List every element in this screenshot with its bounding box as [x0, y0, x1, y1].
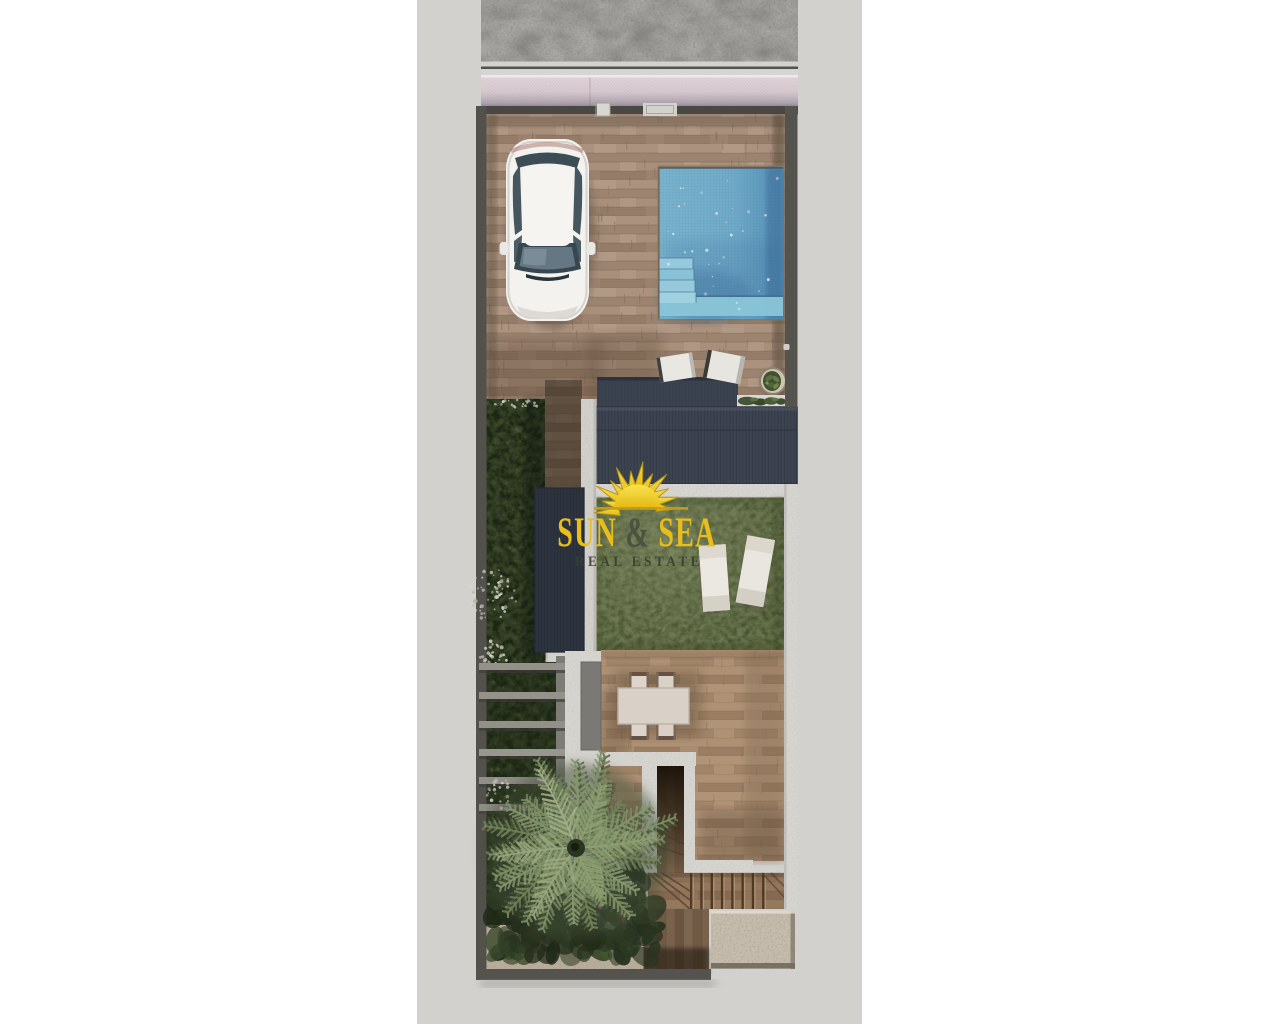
- svg-text:REAL ESTATE: REAL ESTATE: [575, 553, 703, 570]
- svg-text:SUN & SEA: SUN & SEA: [557, 509, 716, 556]
